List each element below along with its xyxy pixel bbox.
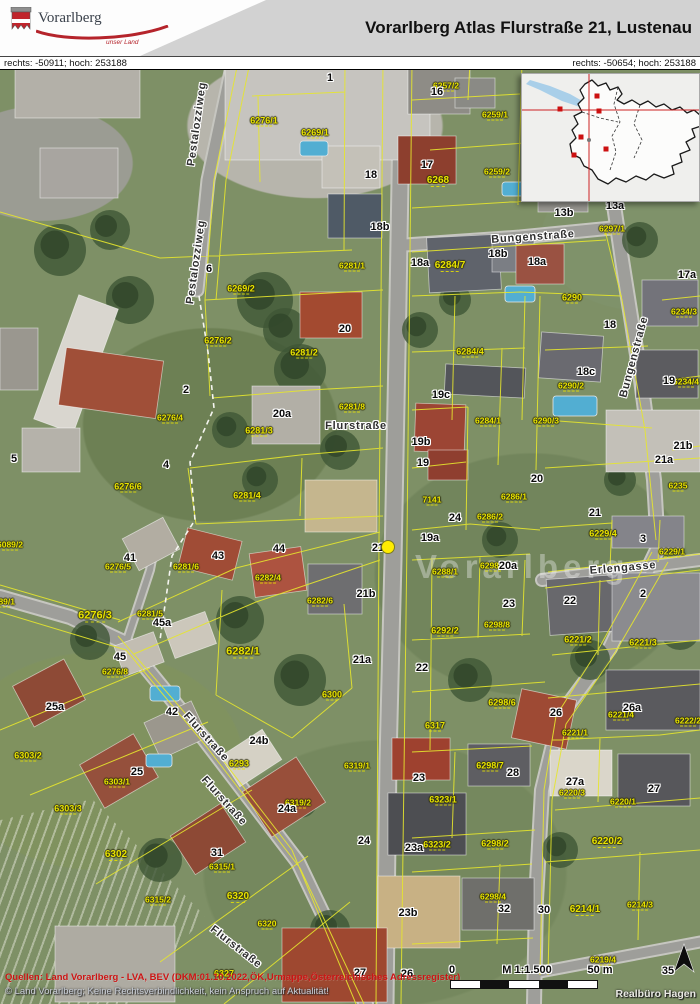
coordinates-right: rechts: -50654; hoch: 253188	[572, 58, 696, 69]
tree	[281, 661, 310, 690]
footpath-dashed	[160, 296, 214, 640]
building-roof	[636, 350, 698, 398]
building-roof	[606, 670, 700, 730]
scale-bar	[450, 980, 598, 989]
swimming-pool	[505, 286, 535, 302]
vorarlberg-shield-icon	[10, 7, 32, 39]
building-roof	[80, 734, 159, 808]
building-roof	[516, 244, 564, 284]
building-roof	[428, 450, 468, 480]
credit-text: Realbüro Hagen	[615, 988, 696, 1000]
building-roof	[40, 148, 118, 198]
tree	[247, 467, 267, 487]
building-roof	[427, 234, 502, 293]
coordinate-bar: rechts: -50911; hoch: 253188 rechts: -50…	[0, 56, 700, 70]
building-roof	[308, 564, 362, 614]
tree	[144, 844, 168, 868]
logo-subtitle: unser Land	[106, 39, 139, 46]
building-roof	[388, 793, 466, 855]
building-roof	[414, 403, 466, 453]
scale-max-label: 50 m	[587, 964, 612, 976]
tree	[217, 417, 237, 437]
swimming-pool	[150, 686, 180, 701]
building-roof	[642, 280, 698, 326]
building-roof	[164, 612, 217, 659]
building-roof	[378, 876, 460, 948]
building-roof	[249, 547, 307, 598]
inset-graphics	[522, 74, 700, 202]
building-roof	[398, 136, 456, 184]
building-roof	[305, 480, 377, 532]
building-roof	[178, 528, 242, 580]
building-roof	[252, 386, 320, 444]
tree	[487, 527, 507, 547]
building-roof	[322, 146, 380, 188]
tree	[41, 231, 70, 260]
road	[385, 70, 402, 1004]
swimming-pool	[553, 396, 597, 416]
aerial-map-graphics	[0, 70, 700, 1004]
page-title: Vorarlberg Atlas Flurstraße 21, Lustenau	[365, 0, 692, 56]
tree	[547, 837, 567, 857]
atlas-print-page: Vorarlberg unser Land Vorarlberg Atlas F…	[0, 0, 700, 1004]
building-roof	[550, 750, 612, 796]
tree	[454, 664, 478, 688]
aerial-map-canvas[interactable]: Vorarlberg 6257/26259/16276/16269/16259/…	[0, 70, 700, 1004]
swimming-pool	[146, 754, 172, 767]
tree	[269, 314, 293, 338]
inset-lake	[526, 80, 584, 107]
building-roof	[444, 364, 525, 398]
tree	[281, 351, 310, 380]
building-roof	[22, 428, 80, 472]
overview-inset-map[interactable]	[521, 73, 700, 202]
logo-swoosh	[36, 25, 171, 43]
header-bar: Vorarlberg unser Land Vorarlberg Atlas F…	[0, 0, 700, 57]
building-roof	[0, 328, 38, 390]
building-roof	[15, 70, 140, 118]
disclaimer-text: © Land Vorarlberg; Keine Rechtsverbindli…	[5, 986, 329, 997]
building-roof	[392, 738, 450, 780]
building-roof	[468, 744, 530, 786]
tree	[112, 282, 138, 308]
building-roof	[300, 292, 362, 338]
building-roof	[538, 332, 603, 382]
tree	[244, 279, 275, 310]
scale-bar-segment	[480, 981, 509, 988]
source-attribution: Quellen: Land Vorarlberg - LVA, BEV (DKM…	[5, 972, 460, 983]
tree	[627, 227, 647, 247]
building-roof	[618, 754, 690, 806]
tree	[325, 435, 347, 457]
scale-zero-label: 0	[449, 964, 455, 976]
swimming-pool	[300, 141, 328, 156]
vorarlberg-logo: Vorarlberg unser Land	[10, 5, 200, 53]
building-roof	[13, 659, 86, 727]
coordinates-left: rechts: -50911; hoch: 253188	[4, 58, 127, 69]
scale-ratio-label: M 1:1.500	[502, 964, 552, 976]
inset-location-dot	[587, 138, 591, 142]
building-roof	[328, 194, 382, 238]
tree	[95, 215, 117, 237]
building-roof	[612, 516, 684, 548]
building-roof	[455, 78, 495, 108]
scale-bar-segment	[539, 981, 568, 988]
